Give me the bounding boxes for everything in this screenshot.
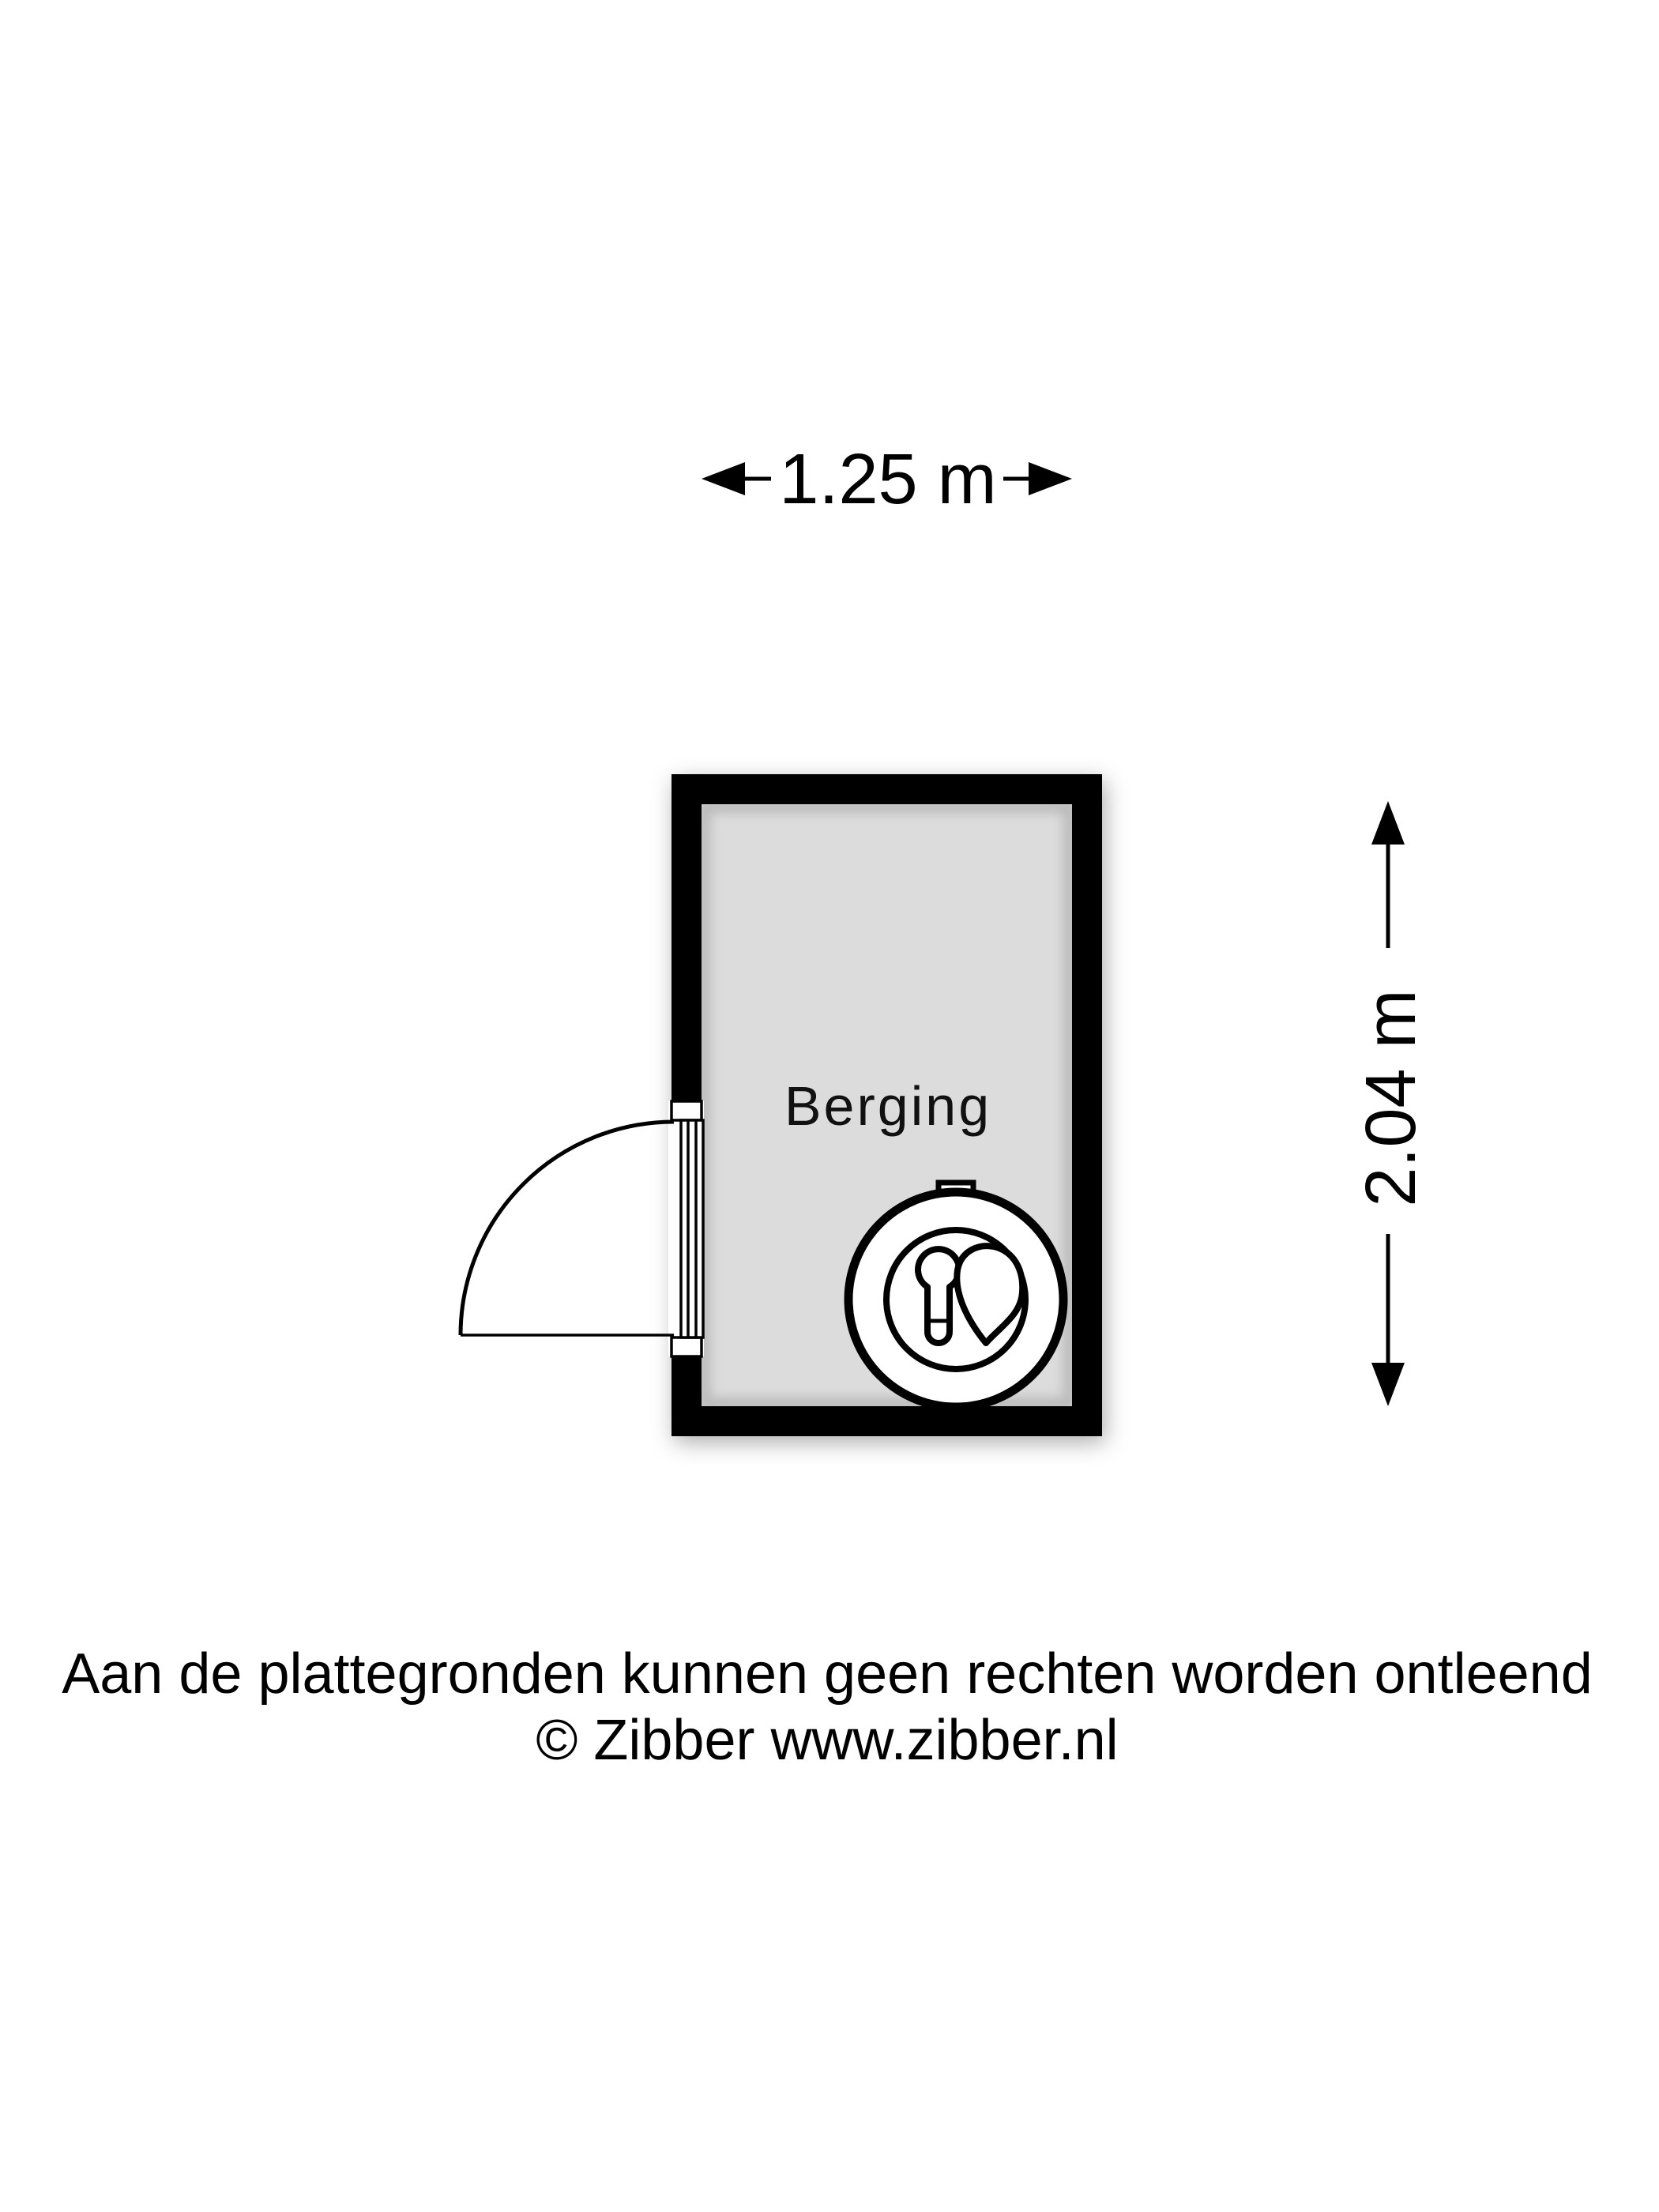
- door-jamb-bottom: [671, 1337, 702, 1356]
- disclaimer-line2: © Zibber www.zibber.nl: [536, 1709, 1118, 1772]
- disclaimer: Aan de plattegronden kunnen geen rechten…: [62, 1642, 1593, 1772]
- disclaimer-line1: Aan de plattegronden kunnen geen rechten…: [62, 1642, 1593, 1706]
- floorplan-page: 1.25 m Berging 2.04 m: [0, 0, 1659, 2212]
- floorplan-canvas: 1.25 m Berging 2.04 m: [0, 0, 1659, 2212]
- door-jamb-top: [671, 1101, 702, 1120]
- width-dimension-label: 1.25 m: [779, 440, 996, 519]
- width-dimension: 1.25 m: [702, 440, 1072, 519]
- height-dim-arrow-top: [1371, 801, 1405, 845]
- width-dim-arrow-right: [1029, 462, 1072, 495]
- height-dimension-label: 2.04 m: [1352, 989, 1431, 1206]
- room-label: Berging: [784, 1075, 991, 1137]
- height-dimension: 2.04 m: [1352, 801, 1431, 1406]
- door-leaf-closed: [681, 1120, 703, 1337]
- door-swing-arc: [461, 1122, 674, 1335]
- height-dim-arrow-bottom: [1371, 1363, 1405, 1406]
- door: [461, 1100, 704, 1356]
- width-dim-arrow-left: [702, 462, 745, 495]
- boiler-icon: [848, 1183, 1063, 1411]
